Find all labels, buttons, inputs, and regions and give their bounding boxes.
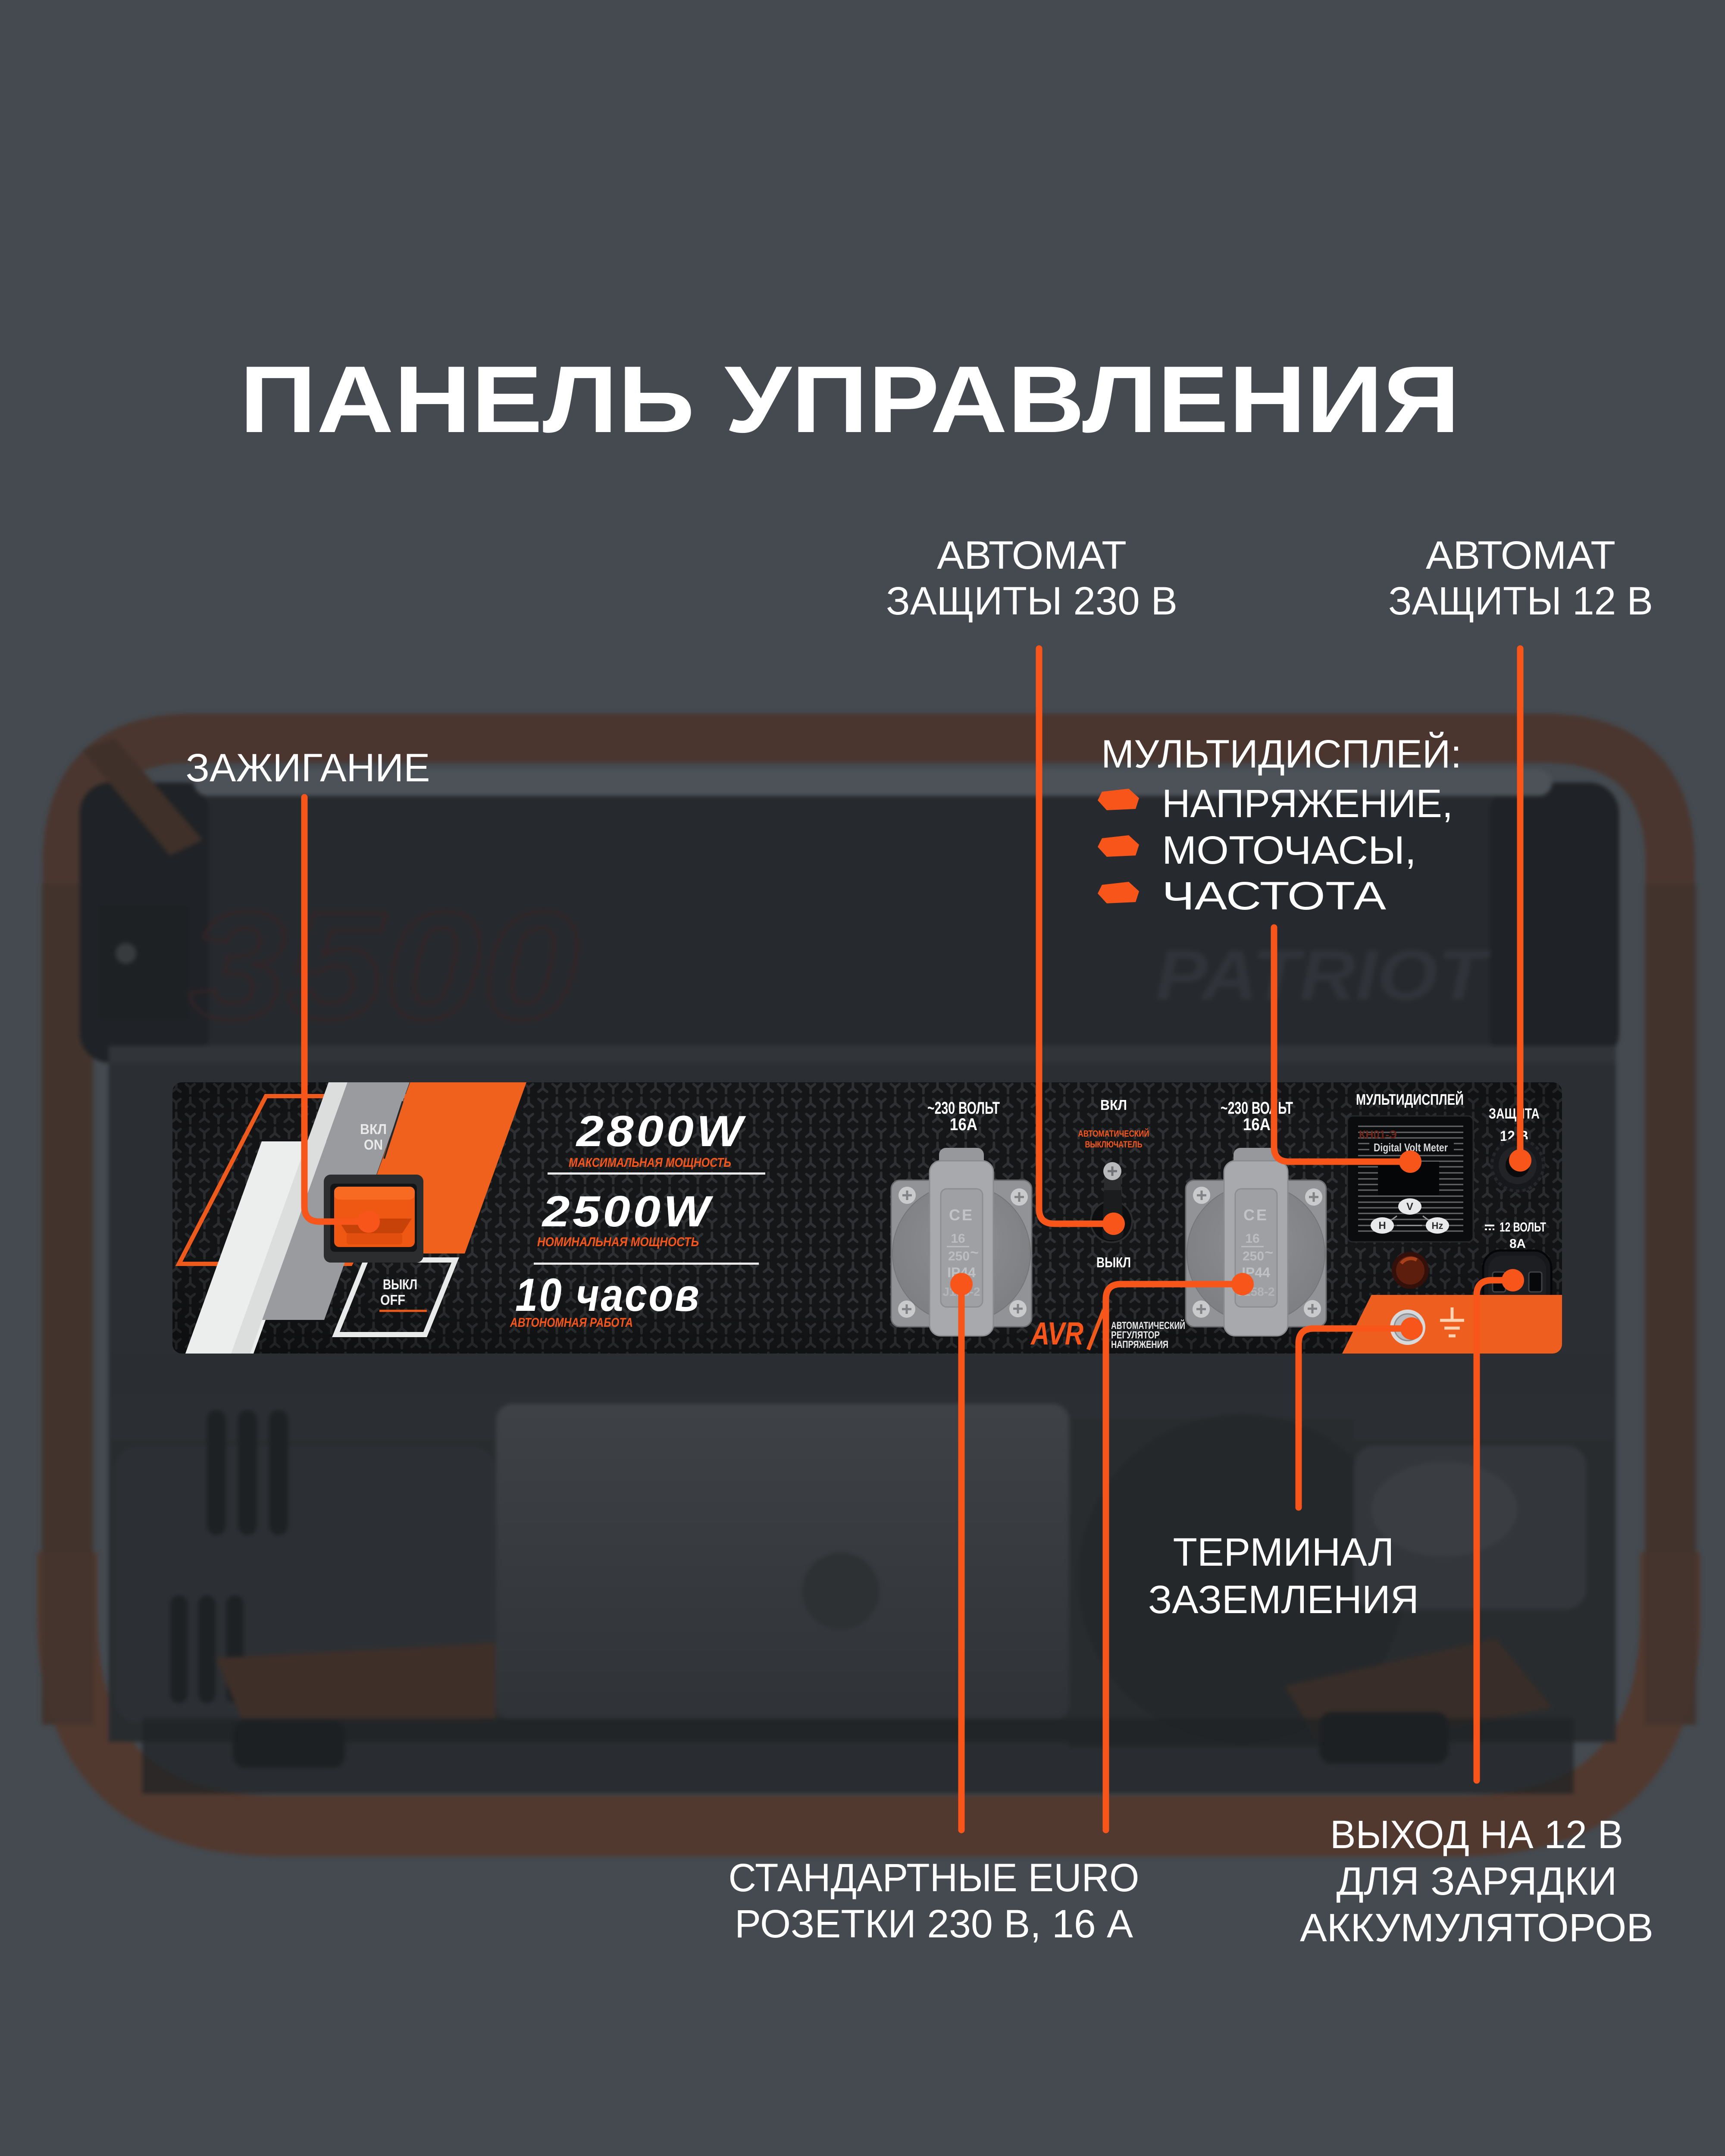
svg-text:PATRIOT: PATRIOT <box>1155 935 1491 1015</box>
svg-text:СТАНДАРТНЫЕ EURO: СТАНДАРТНЫЕ EURO <box>729 1856 1140 1900</box>
svg-text:МУЛЬТИДИСПЛЕЙ:: МУЛЬТИДИСПЛЕЙ: <box>1101 731 1462 776</box>
svg-text:МОТОЧАСЫ,: МОТОЧАСЫ, <box>1162 828 1416 872</box>
svg-text:ЗАЗЕМЛЕНИЯ: ЗАЗЕМЛЕНИЯ <box>1148 1578 1419 1622</box>
svg-text:МАКСИМАЛЬНАЯ МОЩНОСТЬ: МАКСИМАЛЬНАЯ МОЩНОСТЬ <box>569 1156 731 1170</box>
svg-text:10 часов: 10 часов <box>515 1269 701 1321</box>
svg-text:ЧАСТОТА: ЧАСТОТА <box>1162 874 1387 918</box>
svg-text:ЗАЩИТЫ 230 В: ЗАЩИТЫ 230 В <box>886 579 1177 623</box>
svg-text:16А: 16А <box>950 1115 977 1134</box>
svg-text:3500: 3500 <box>189 881 579 1051</box>
svg-text:РОЗЕТКИ 230 В, 16 А: РОЗЕТКИ 230 В, 16 А <box>735 1902 1133 1946</box>
svg-text:16А: 16А <box>1243 1115 1271 1134</box>
svg-text:H: H <box>1378 1220 1386 1232</box>
svg-text:2500W: 2500W <box>542 1188 714 1236</box>
svg-text:~: ~ <box>1265 1244 1273 1261</box>
svg-text:~: ~ <box>970 1244 979 1261</box>
svg-text:ВЫКЛЮЧАТЕЛЬ: ВЫКЛЮЧАТЕЛЬ <box>1085 1140 1143 1150</box>
svg-text:8А: 8А <box>1509 1237 1526 1251</box>
svg-text:НАПРЯЖЕНИЕ,: НАПРЯЖЕНИЕ, <box>1162 782 1453 826</box>
svg-text:АККУМУЛЯТОРОВ: АККУМУЛЯТОРОВ <box>1300 1906 1653 1950</box>
svg-text:CE: CE <box>949 1206 974 1224</box>
svg-text:НАПРЯЖЕНИЯ: НАПРЯЖЕНИЯ <box>1111 1339 1168 1351</box>
svg-text:НОМИНАЛЬНАЯ МОЩНОСТЬ: НОМИНАЛЬНАЯ МОЩНОСТЬ <box>537 1235 699 1249</box>
svg-text:АВТОМАТИЧЕСКИЙ: АВТОМАТИЧЕСКИЙ <box>1078 1128 1149 1139</box>
svg-text:ДЛЯ ЗАРЯДКИ: ДЛЯ ЗАРЯДКИ <box>1337 1859 1617 1903</box>
svg-text:16: 16 <box>951 1232 965 1246</box>
svg-text:16: 16 <box>1245 1232 1259 1246</box>
svg-text:ВЫКЛ: ВЫКЛ <box>1096 1254 1131 1270</box>
svg-text:ВЫХОД НА 12 В: ВЫХОД НА 12 В <box>1330 1813 1623 1857</box>
svg-text:КН01-Э: КН01-Э <box>1359 1128 1397 1141</box>
svg-text:2800W: 2800W <box>576 1107 746 1156</box>
svg-text:AVR: AVR <box>1030 1316 1083 1351</box>
svg-text:250: 250 <box>948 1249 970 1263</box>
svg-text:ЗАЩИТА: ЗАЩИТА <box>1489 1106 1540 1122</box>
svg-text:ЗАЩИТЫ 12 В: ЗАЩИТЫ 12 В <box>1388 579 1653 623</box>
svg-text:ПАНЕЛЬ УПРАВЛЕНИЯ: ПАНЕЛЬ УПРАВЛЕНИЯ <box>240 346 1460 452</box>
svg-text:CE: CE <box>1243 1206 1268 1224</box>
svg-text:ВКЛ: ВКЛ <box>360 1121 387 1137</box>
svg-text:ВКЛ: ВКЛ <box>1100 1097 1127 1113</box>
svg-text:АВТОНОМНАЯ РАБОТА: АВТОНОМНАЯ РАБОТА <box>510 1316 633 1330</box>
svg-text:ВЫКЛ: ВЫКЛ <box>383 1276 417 1292</box>
svg-text:Hz: Hz <box>1432 1220 1443 1231</box>
svg-text:250: 250 <box>1243 1249 1264 1263</box>
svg-text:АВТОМАТ: АВТОМАТ <box>1426 533 1615 577</box>
svg-text:АВТОМАТ: АВТОМАТ <box>937 533 1127 577</box>
svg-text:V: V <box>1406 1201 1413 1213</box>
svg-text:ON: ON <box>364 1137 383 1153</box>
svg-text:МУЛЬТИДИСПЛЕЙ: МУЛЬТИДИСПЛЕЙ <box>1356 1091 1464 1108</box>
svg-text:ТЕРМИНАЛ: ТЕРМИНАЛ <box>1173 1530 1394 1574</box>
svg-text:ЗАЖИГАНИЕ: ЗАЖИГАНИЕ <box>186 746 430 790</box>
svg-text:12 ВОЛЬТ: 12 ВОЛЬТ <box>1500 1219 1546 1235</box>
svg-text:OFF: OFF <box>380 1292 405 1308</box>
